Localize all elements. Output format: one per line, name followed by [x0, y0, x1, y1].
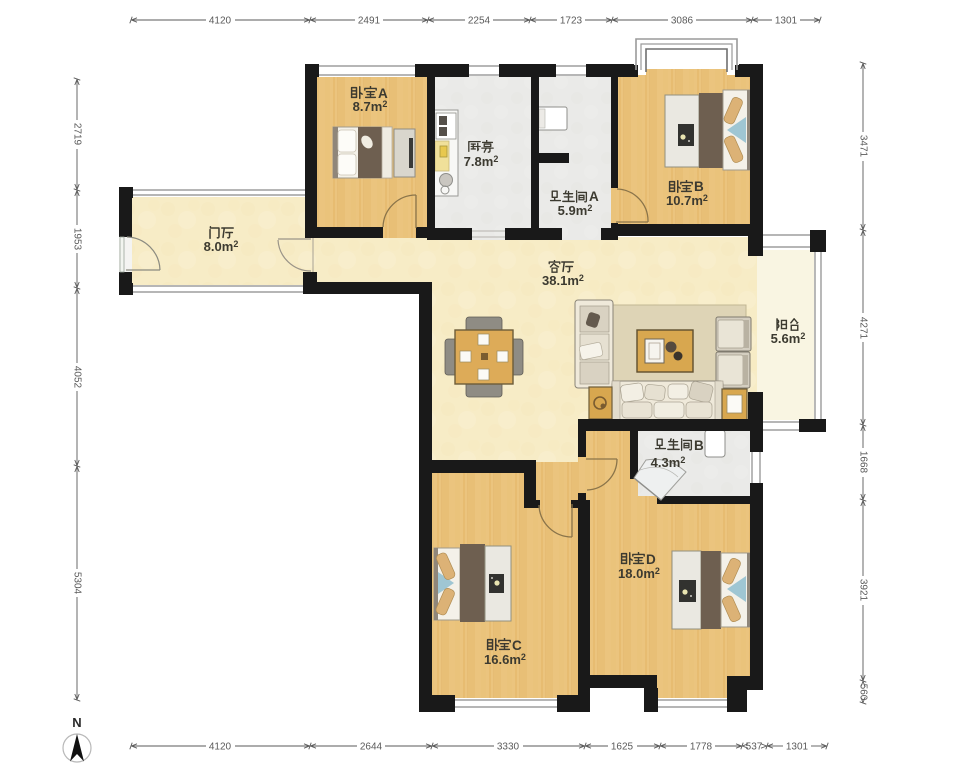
svg-text:3086: 3086	[671, 16, 694, 27]
svg-text:560: 560	[857, 684, 868, 701]
svg-text:1668: 1668	[857, 451, 868, 474]
svg-text:3330: 3330	[497, 742, 520, 753]
svg-text:16.6m2: 16.6m2	[484, 652, 526, 667]
svg-text:8.0m2: 8.0m2	[204, 239, 239, 254]
svg-text:4.3m2: 4.3m2	[651, 455, 686, 470]
svg-text:B: B	[694, 179, 704, 194]
svg-text:2644: 2644	[360, 742, 383, 753]
svg-text:D: D	[646, 552, 656, 567]
svg-text:3471: 3471	[857, 135, 868, 158]
svg-text:4120: 4120	[209, 742, 232, 753]
svg-text:2719: 2719	[71, 123, 82, 146]
svg-text:5.6m2: 5.6m2	[771, 331, 806, 346]
svg-text:18.0m2: 18.0m2	[618, 566, 660, 581]
svg-text:2491: 2491	[358, 16, 381, 27]
svg-text:10.7m2: 10.7m2	[666, 193, 708, 208]
svg-text:1778: 1778	[690, 742, 713, 753]
svg-text:537: 537	[746, 742, 763, 753]
svg-text:38.1m2: 38.1m2	[542, 273, 584, 288]
svg-text:4052: 4052	[71, 366, 82, 389]
svg-text:1625: 1625	[611, 742, 634, 753]
svg-text:1723: 1723	[560, 16, 583, 27]
svg-text:1301: 1301	[775, 16, 798, 27]
svg-text:2254: 2254	[468, 16, 491, 27]
svg-text:C: C	[512, 638, 522, 653]
svg-text:5.9m2: 5.9m2	[558, 203, 593, 218]
svg-text:3921: 3921	[857, 579, 868, 602]
svg-text:N: N	[72, 715, 81, 730]
svg-text:1953: 1953	[71, 228, 82, 251]
svg-text:8.7m2: 8.7m2	[353, 99, 388, 114]
svg-text:A: A	[589, 189, 599, 204]
svg-text:7.8m2: 7.8m2	[464, 154, 499, 169]
svg-text:B: B	[694, 438, 704, 453]
svg-text:5304: 5304	[71, 572, 82, 595]
svg-text:4120: 4120	[209, 16, 232, 27]
svg-text:1301: 1301	[786, 742, 809, 753]
svg-text:4271: 4271	[857, 317, 868, 340]
